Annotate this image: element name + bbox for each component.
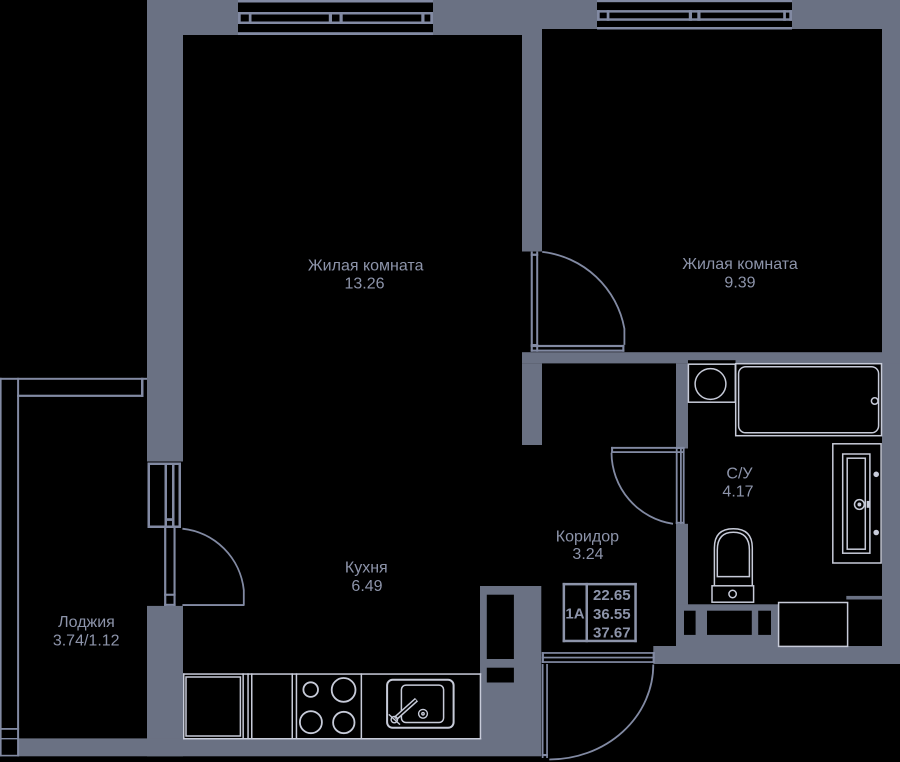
svg-text:Кухня: Кухня	[345, 560, 388, 577]
svg-text:С/У: С/У	[726, 466, 753, 483]
svg-text:36.55: 36.55	[593, 606, 631, 623]
svg-text:6.49: 6.49	[351, 578, 382, 595]
svg-text:37.67: 37.67	[593, 624, 631, 641]
svg-text:9.39: 9.39	[724, 275, 755, 292]
svg-text:13.26: 13.26	[344, 275, 384, 292]
svg-text:Жилая комната: Жилая комната	[682, 256, 798, 273]
svg-text:3.24: 3.24	[572, 546, 603, 563]
svg-text:Коридор: Коридор	[556, 528, 619, 545]
svg-text:3.74/1.12: 3.74/1.12	[53, 632, 120, 649]
svg-text:4.17: 4.17	[722, 484, 753, 501]
svg-text:1А: 1А	[565, 605, 584, 622]
svg-text:22.65: 22.65	[593, 587, 631, 604]
svg-text:Жилая комната: Жилая комната	[308, 257, 424, 274]
svg-text:Лоджия: Лоджия	[58, 614, 115, 631]
